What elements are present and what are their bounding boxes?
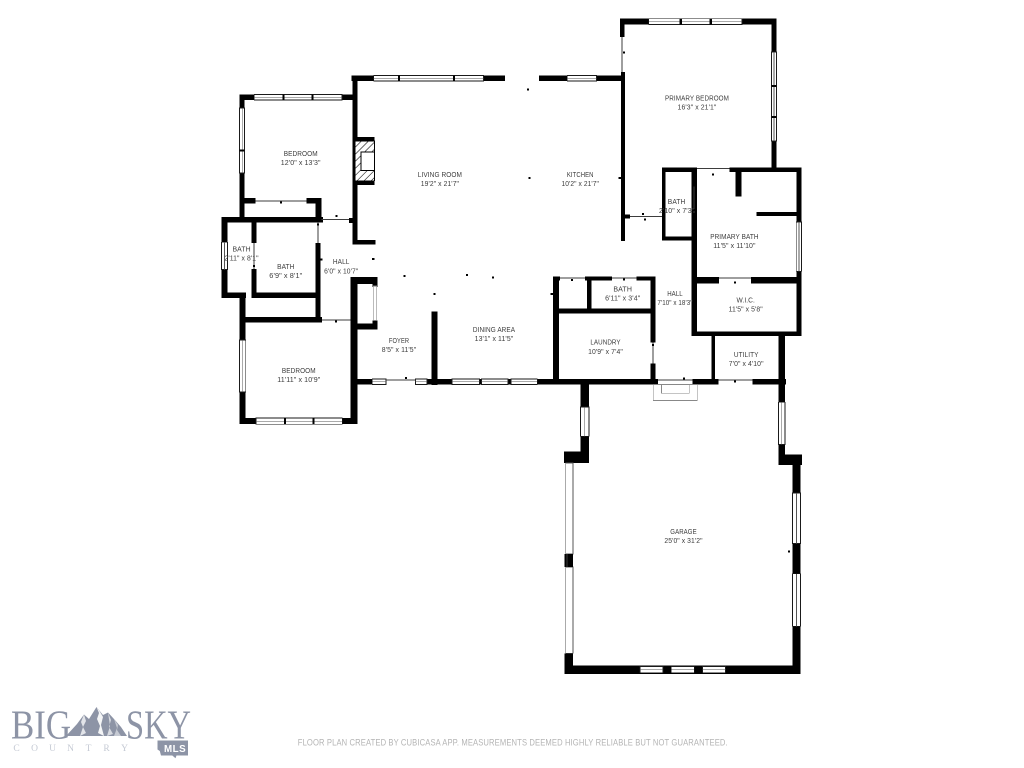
svg-text:13'1" x 11'5": 13'1" x 11'5"	[475, 334, 514, 343]
svg-text:19'2" x 21'7": 19'2" x 21'7"	[421, 179, 460, 188]
svg-text:HALL: HALL	[667, 289, 683, 298]
svg-text:KITCHEN: KITCHEN	[567, 170, 594, 179]
svg-text:PRIMARY BEDROOM: PRIMARY BEDROOM	[665, 94, 729, 103]
svg-text:T: T	[86, 744, 92, 754]
svg-text:BATH: BATH	[613, 284, 632, 293]
svg-text:6'11" x 3'4": 6'11" x 3'4"	[605, 294, 640, 303]
svg-text:BATH: BATH	[277, 262, 294, 271]
svg-text:25'0" x 31'2": 25'0" x 31'2"	[664, 536, 702, 545]
svg-text:10'2" x 21'7": 10'2" x 21'7"	[561, 179, 599, 188]
svg-text:12'0" x 13'3": 12'0" x 13'3"	[281, 158, 321, 167]
svg-text:U: U	[49, 744, 56, 754]
svg-text:10'9" x 7'4": 10'9" x 7'4"	[588, 347, 623, 356]
svg-text:2'11" x 8'1": 2'11" x 8'1"	[225, 254, 259, 263]
svg-text:11'11" x 10'9": 11'11" x 10'9"	[277, 375, 320, 384]
svg-text:LAUNDRY: LAUNDRY	[590, 338, 620, 347]
svg-text:8'5" x 11'5": 8'5" x 11'5"	[382, 345, 417, 354]
svg-text:BATH: BATH	[668, 197, 686, 206]
svg-text:W.I.C.: W.I.C.	[736, 296, 755, 305]
svg-text:6'9" x 8'1": 6'9" x 8'1"	[269, 271, 302, 280]
svg-text:BIG: BIG	[11, 702, 71, 748]
svg-text:HALL: HALL	[333, 257, 350, 266]
svg-text:MLS: MLS	[164, 744, 186, 755]
svg-text:FOYER: FOYER	[389, 336, 409, 345]
svg-text:LIVING ROOM: LIVING ROOM	[418, 170, 462, 179]
svg-text:O: O	[31, 744, 38, 754]
svg-text:11'5" x 5'8": 11'5" x 5'8"	[729, 305, 763, 314]
svg-text:PRIMARY BATH: PRIMARY BATH	[710, 232, 758, 241]
svg-text:N: N	[67, 744, 74, 754]
svg-text:BEDROOM: BEDROOM	[282, 366, 316, 375]
svg-text:7'10" x 18'3": 7'10" x 18'3"	[657, 298, 692, 307]
svg-text:GARAGE: GARAGE	[670, 527, 696, 536]
svg-text:FLOOR PLAN CREATED BY CUBICASA: FLOOR PLAN CREATED BY CUBICASA APP. MEAS…	[298, 738, 728, 748]
svg-text:R: R	[103, 744, 110, 754]
svg-text:16'3" x 21'1": 16'3" x 21'1"	[678, 103, 717, 112]
svg-text:BATH: BATH	[233, 244, 251, 253]
svg-text:2'10" x 7'3": 2'10" x 7'3"	[659, 206, 694, 215]
svg-text:6'0" x 10'7": 6'0" x 10'7"	[324, 266, 358, 275]
svg-text:11'5" x 11'10": 11'5" x 11'10"	[713, 241, 756, 250]
svg-text:UTILITY: UTILITY	[734, 350, 759, 359]
svg-text:DINING AREA: DINING AREA	[473, 325, 515, 334]
svg-text:BEDROOM: BEDROOM	[284, 149, 318, 158]
svg-text:C: C	[13, 744, 19, 754]
svg-text:7'0" x 4'10": 7'0" x 4'10"	[729, 359, 764, 368]
svg-text:Y: Y	[121, 744, 128, 754]
